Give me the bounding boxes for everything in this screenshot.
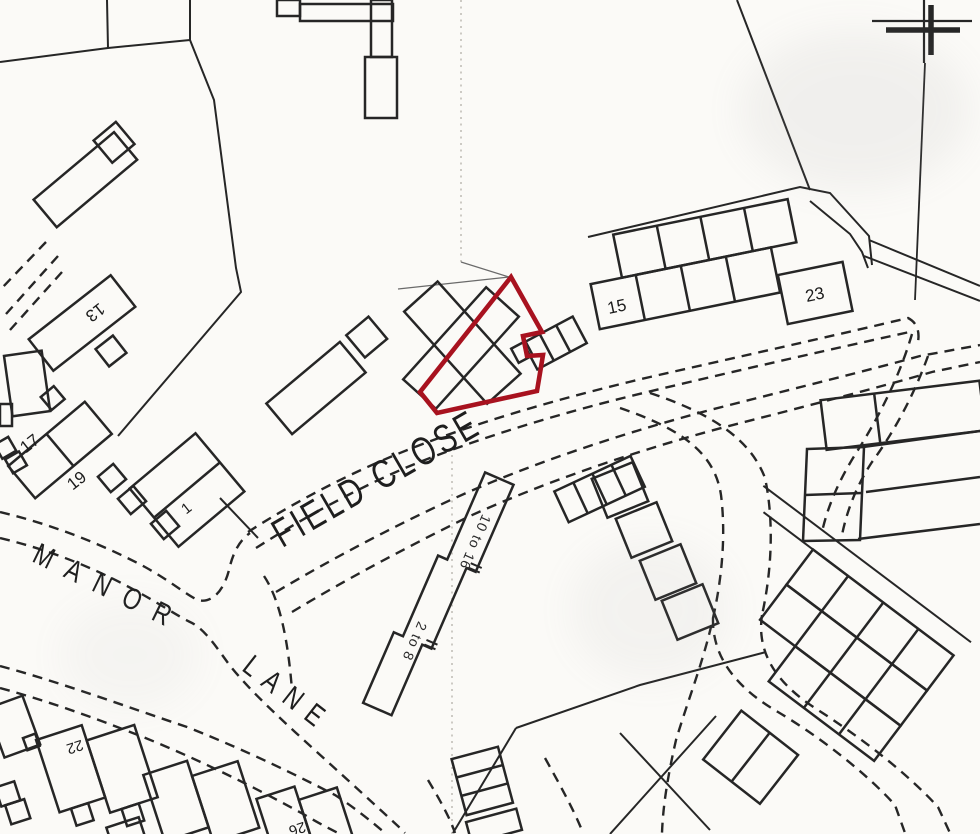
house-number-23: 23 <box>804 283 826 306</box>
site-plan-map: FIELD CLOSE MANOR LANE 15 23 13 17 19 1 … <box>0 0 980 834</box>
paper-background <box>0 0 980 834</box>
boundary-line <box>107 0 108 48</box>
house-number-15: 15 <box>606 295 628 318</box>
map-canvas: FIELD CLOSE MANOR LANE 15 23 13 17 19 1 … <box>0 0 980 834</box>
